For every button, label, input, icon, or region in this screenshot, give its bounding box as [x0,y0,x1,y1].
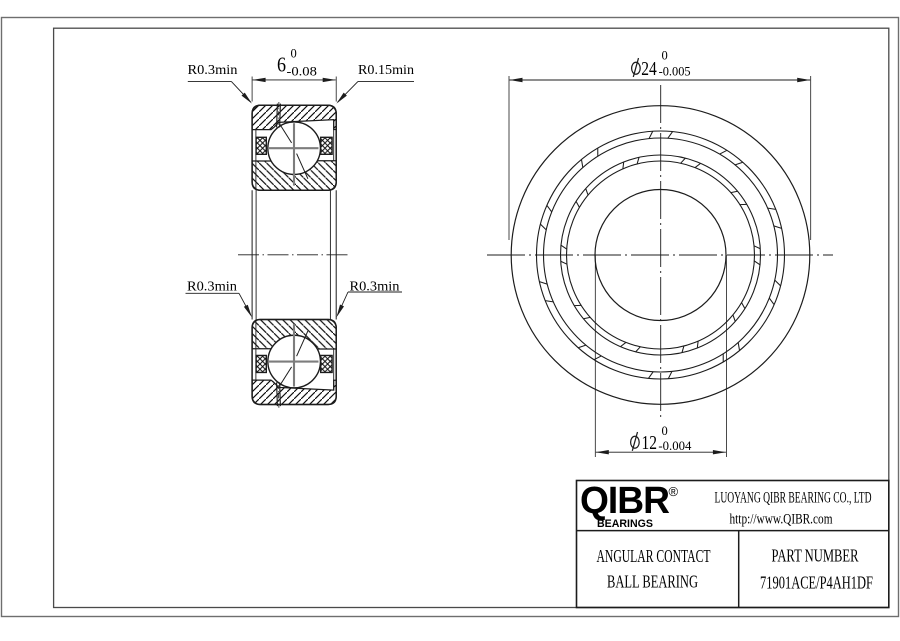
svg-text:BEARINGS: BEARINGS [597,518,653,530]
svg-text:QIBR: QIBR [580,480,670,522]
svg-text:BALL BEARING: BALL BEARING [607,572,698,592]
svg-text:R0.3min: R0.3min [187,279,237,294]
svg-text:0: 0 [291,47,297,61]
svg-text:®: ® [669,484,679,499]
svg-text:-0.08: -0.08 [287,64,317,78]
svg-text:ANGULAR CONTACT: ANGULAR CONTACT [597,546,711,566]
svg-text:R0.15min: R0.15min [358,62,414,77]
svg-text:71901ACE/P4AH1DF: 71901ACE/P4AH1DF [760,573,873,593]
svg-text:6: 6 [277,53,286,77]
svg-text:-0.005: -0.005 [659,65,691,79]
svg-text:LUOYANG QIBR BEARING CO., LTD: LUOYANG QIBR BEARING CO., LTD [715,490,872,507]
svg-text:-0.004: -0.004 [658,439,692,453]
svg-text:24: 24 [641,58,657,80]
svg-text:0: 0 [662,48,668,62]
svg-text:R0.3min: R0.3min [188,62,238,77]
svg-text:PART NUMBER: PART NUMBER [772,546,859,566]
svg-text:R0.3min: R0.3min [350,279,400,294]
svg-text:0: 0 [662,424,668,438]
svg-text:http://www.QIBR.com: http://www.QIBR.com [730,512,833,528]
svg-text:12: 12 [642,432,658,454]
